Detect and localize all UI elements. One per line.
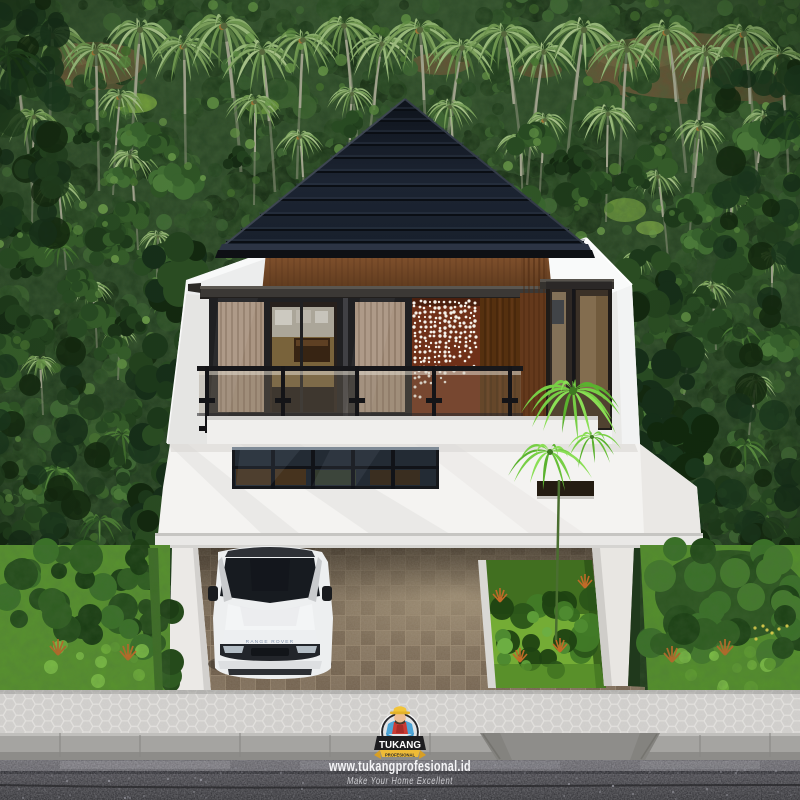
- svg-text:TUKANG: TUKANG: [379, 739, 421, 751]
- svg-text:www.tukangprofesional.id: www.tukangprofesional.id: [328, 759, 471, 775]
- svg-text:Make Your Home Excellent: Make Your Home Excellent: [347, 775, 453, 787]
- svg-text:PROFESIONAL: PROFESIONAL: [385, 752, 415, 757]
